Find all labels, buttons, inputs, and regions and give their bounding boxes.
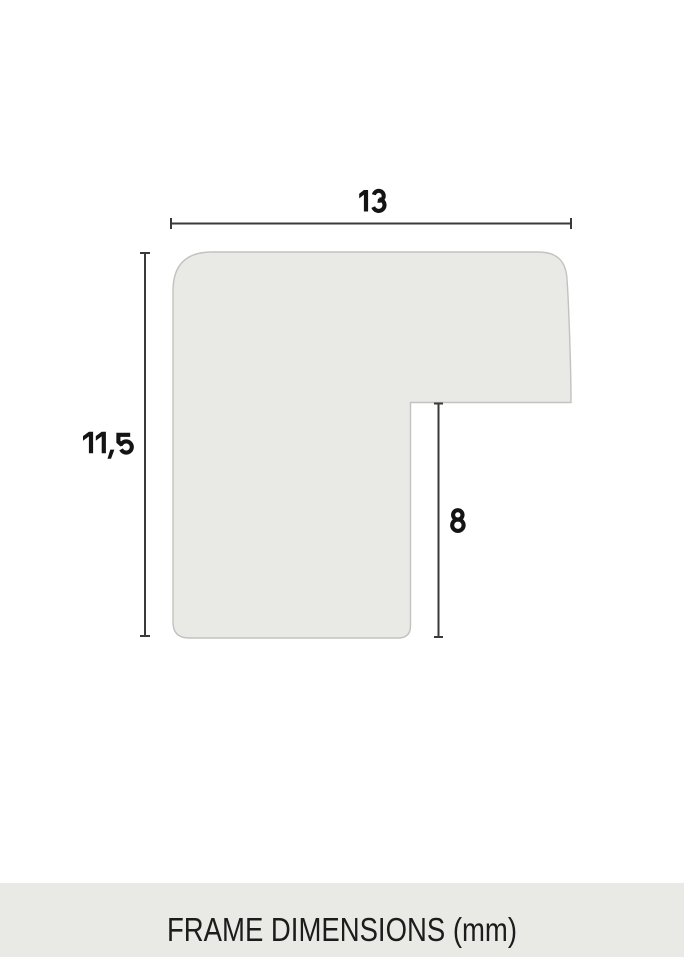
svg-text:FRAME DIMENSIONS (mm): FRAME DIMENSIONS (mm): [167, 911, 517, 948]
